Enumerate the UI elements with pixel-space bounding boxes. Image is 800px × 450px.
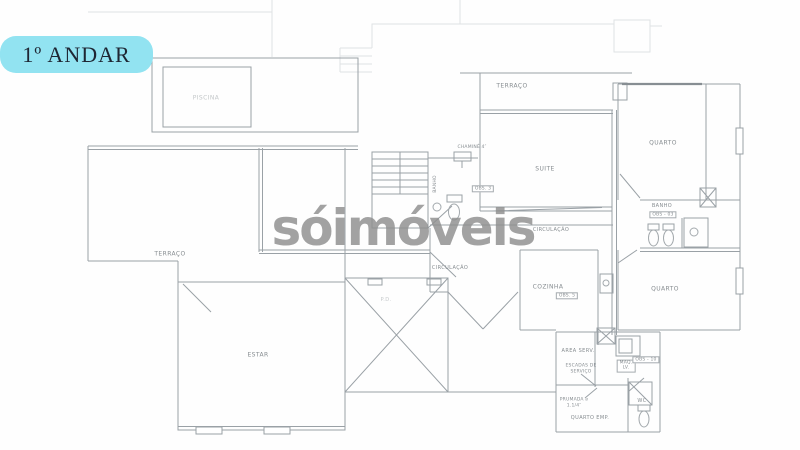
label-pd: P.D. <box>381 297 392 303</box>
room-label-cozinha: COZINHA <box>533 283 564 291</box>
room-label-banho-2: BANHO <box>433 175 439 192</box>
room-label-terraco-top: TERRAÇO <box>496 82 527 90</box>
windows <box>196 128 743 434</box>
room-label-wc: WC <box>637 398 646 404</box>
room-label-banho-1: BANHO <box>652 203 672 209</box>
floorplan-canvas: PISCINA TERRAÇO SUITE QUARTO BANHO OBS -… <box>0 0 800 450</box>
obs-box-cozinha: OBS. 5 <box>556 292 578 299</box>
obs-box-banho: OBS - 03 <box>649 211 676 218</box>
toilet-icon <box>649 230 659 246</box>
sink-icon <box>603 280 609 286</box>
scan-artifact-lines <box>88 0 662 72</box>
bidet-icon <box>664 230 674 246</box>
room-label-circulacao-1: CIRCULAÇÃO <box>533 227 569 233</box>
room-label-quarto-emp: QUARTO EMP. <box>571 415 609 421</box>
floor-badge-label: 1º ANDAR <box>22 42 130 68</box>
room-label-circulacao-2: CIRCULAÇÃO <box>432 265 468 271</box>
obs-box-10: OBS - 10 <box>632 356 659 363</box>
room-label-area-serv: AREA SERV. <box>562 348 595 354</box>
room-label-terraco-left: TERRAÇO <box>154 250 185 258</box>
watermark: sóimóveis <box>271 199 534 257</box>
room-label-quarto-2: QUARTO <box>651 285 679 293</box>
room-label-estar: ESTAR <box>247 351 268 359</box>
label-prumada: PRUMADA ⌀ 1.1/4″ <box>560 397 589 408</box>
label-chamine: CHAMINÉ 4″ <box>458 145 487 151</box>
room-label-piscina: PISCINA <box>193 94 220 102</box>
label-escadas: ESCADAS DE SERVIÇO <box>566 363 597 374</box>
obs-box-3: OBS. 3 <box>472 185 494 192</box>
toilet-icon <box>639 411 649 427</box>
room-label-quarto-1: QUARTO <box>649 139 677 147</box>
room-label-suite: SUITE <box>535 165 554 173</box>
sink-icon <box>690 228 698 236</box>
floor-badge: 1º ANDAR <box>0 36 153 73</box>
